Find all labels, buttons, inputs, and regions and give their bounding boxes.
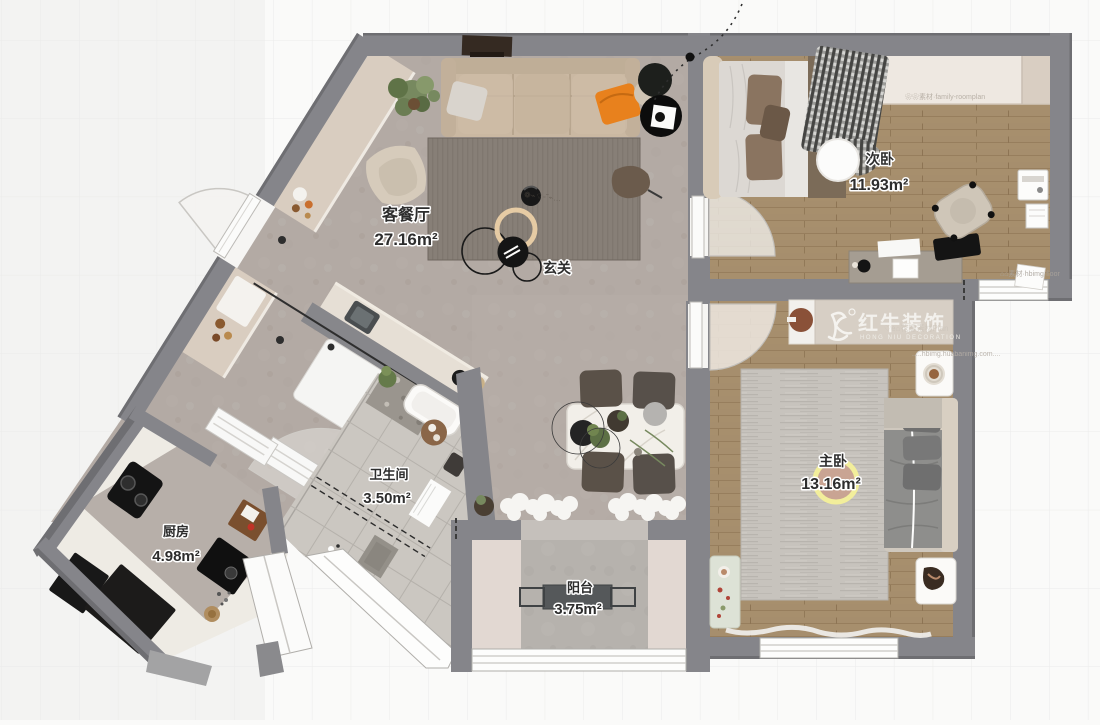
svg-text:13.16m²: 13.16m²	[801, 476, 861, 493]
svg-text:厨房: 厨房	[163, 524, 189, 539]
svg-text:4.98m²: 4.98m²	[152, 548, 200, 565]
svg-text:客餐厅: 客餐厅	[382, 205, 430, 224]
svg-text:HONG NIU DECORATION: HONG NIU DECORATION	[860, 335, 962, 341]
svg-text:3.75m²: 3.75m²	[554, 601, 602, 618]
svg-text:11.93m²: 11.93m²	[850, 177, 909, 194]
svg-text:.....hbimg.huabanimg.com....: .....hbimg.huabanimg.com....	[912, 351, 1000, 358]
svg-text:次卧: 次卧	[866, 151, 894, 167]
svg-text:⌂⌂素材·hbimg·floor: ⌂⌂素材·hbimg·floor	[1000, 269, 1060, 278]
svg-text:3.50m²: 3.50m²	[363, 490, 411, 507]
svg-text:♡e⌂花瓣素材Plan: ♡e⌂花瓣素材Plan	[884, 323, 948, 333]
svg-text:27.16m²: 27.16m²	[374, 230, 438, 249]
svg-text:阳台: 阳台	[567, 580, 593, 595]
svg-text:玄关: 玄关	[543, 260, 571, 276]
svg-text:卫生间: 卫生间	[369, 467, 408, 482]
svg-text:主卧: 主卧	[819, 453, 847, 469]
svg-text:❀❀素材·family-roomplan: ❀❀素材·family-roomplan	[905, 92, 985, 101]
